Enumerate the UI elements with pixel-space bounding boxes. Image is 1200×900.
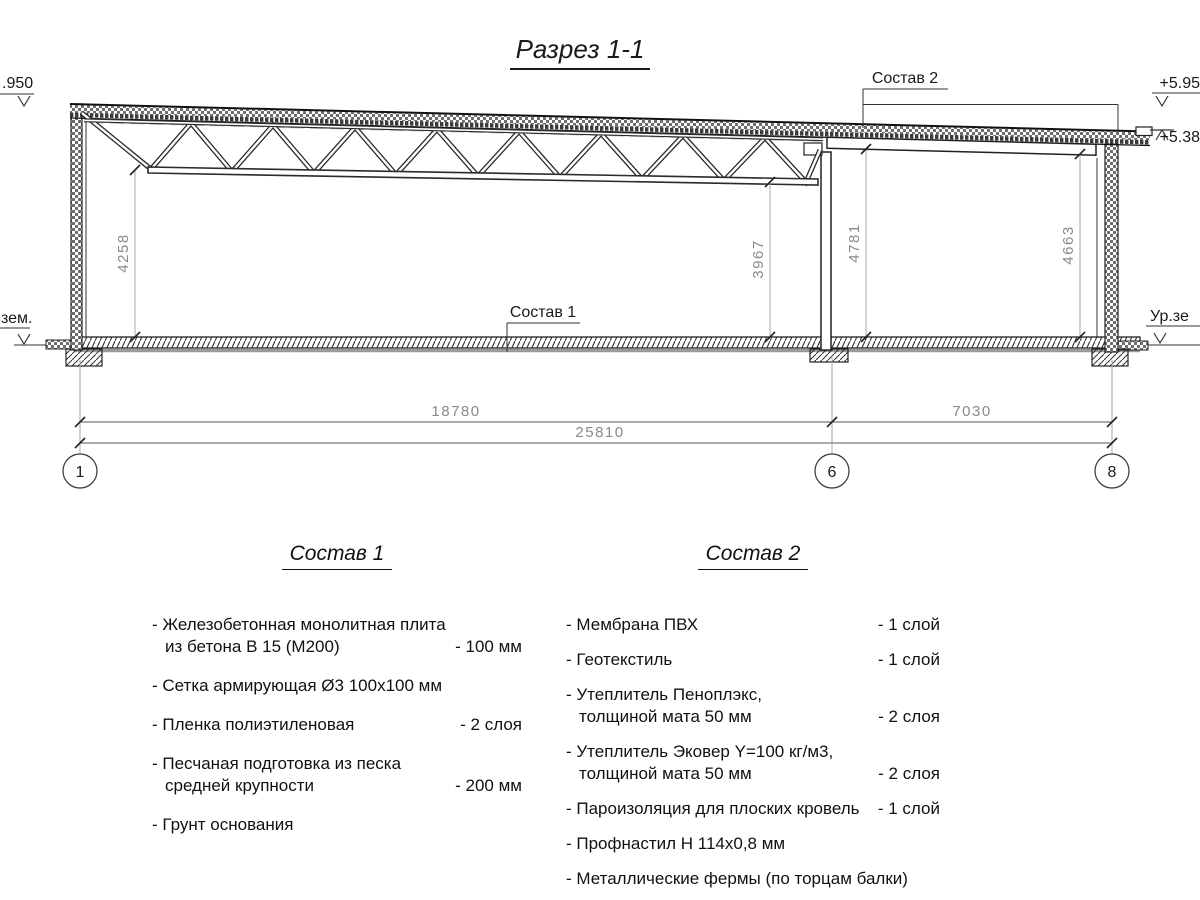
drawing-title-text: Разрез 1-1 <box>510 34 651 70</box>
list-item: - Пароизоляция для плоских кровель - 1 с… <box>566 798 940 820</box>
list-item: - Грунт основания <box>152 814 522 836</box>
wall-right <box>1105 144 1118 352</box>
list-item: - Железобетонная монолитная плита из бет… <box>152 614 522 658</box>
ground-mark-right: Ур.зе <box>1146 308 1200 343</box>
dim-height-4781: 4781 <box>846 223 863 262</box>
dim-span-18780: 18780 <box>431 403 480 420</box>
ground-left-label: зем. <box>1 310 33 327</box>
wall-left <box>71 104 82 350</box>
axis-bubbles: 1 6 8 <box>63 454 1129 488</box>
ground-right-label: Ур.зе <box>1150 308 1189 325</box>
drawing-title: Разрез 1-1 <box>420 34 740 70</box>
list-item: - Пленка полиэтиленовая - 2 слоя <box>152 714 522 736</box>
list-item: - Утеплитель Эковер Y=100 кг/м3, толщино… <box>566 741 940 785</box>
callout-sostav1-label: Состав 1 <box>510 304 576 321</box>
elevation-right-top-label: +5.95 <box>1160 75 1200 92</box>
column-axis-6 <box>821 152 831 350</box>
dim-height-4663: 4663 <box>1060 225 1077 264</box>
roof-edge-cap <box>1136 127 1152 136</box>
axis-label-8: 8 <box>1108 464 1117 481</box>
dim-span-25810: 25810 <box>575 424 624 441</box>
sostav1-heading: Состав 1 <box>152 542 522 570</box>
horizontal-dimensions: 18780 7030 25810 <box>75 356 1117 453</box>
callout-sostav2-label: Состав 2 <box>872 70 938 87</box>
list-item: - Сетка армирующая Ø3 100х100 мм <box>152 675 522 697</box>
sostav2-list: Состав 2 - Мембрана ПВХ - 1 слой - Геоте… <box>566 542 940 900</box>
elevation-mark-right-low: +5.38 <box>1150 129 1200 146</box>
dim-height-3967: 3967 <box>750 239 767 278</box>
foundation-middle <box>810 349 848 362</box>
list-item: - Геотекстиль - 1 слой <box>566 649 940 671</box>
ground-mark-left: зем. <box>0 310 33 344</box>
list-item: - Песчаная подготовка из песка средней к… <box>152 753 522 797</box>
drawing-sheet: Разрез 1-1 <box>0 0 1200 900</box>
list-item: - Мембрана ПВХ - 1 слой <box>566 614 940 636</box>
list-item: - Утеплитель Пеноплэкс, толщиной мата 50… <box>566 684 940 728</box>
elevation-mark-left-top: .950 <box>0 75 34 106</box>
elevation-left-top-label: .950 <box>2 75 33 92</box>
list-item: - Профнастил Н 114х0,8 мм <box>566 833 940 855</box>
elevation-right-low-label: +5.38 <box>1160 129 1200 146</box>
axis-label-6: 6 <box>828 464 837 481</box>
sostav2-heading: Состав 2 <box>566 542 940 570</box>
sostav1-list: Состав 1 - Железобетонная монолитная пли… <box>152 542 522 853</box>
floor-slab <box>74 337 1140 352</box>
list-item: - Металлические фермы (по торцам балки) <box>566 868 940 890</box>
dim-span-7030: 7030 <box>952 403 991 420</box>
elevation-mark-right-top: +5.95 <box>1152 75 1200 106</box>
axis-label-1: 1 <box>76 464 85 481</box>
callout-sostav2: Состав 2 <box>863 70 948 128</box>
dim-height-4258: 4258 <box>115 233 132 272</box>
section-drawing: 4258 3967 4781 4663 18780 7030 258 <box>0 0 1200 520</box>
